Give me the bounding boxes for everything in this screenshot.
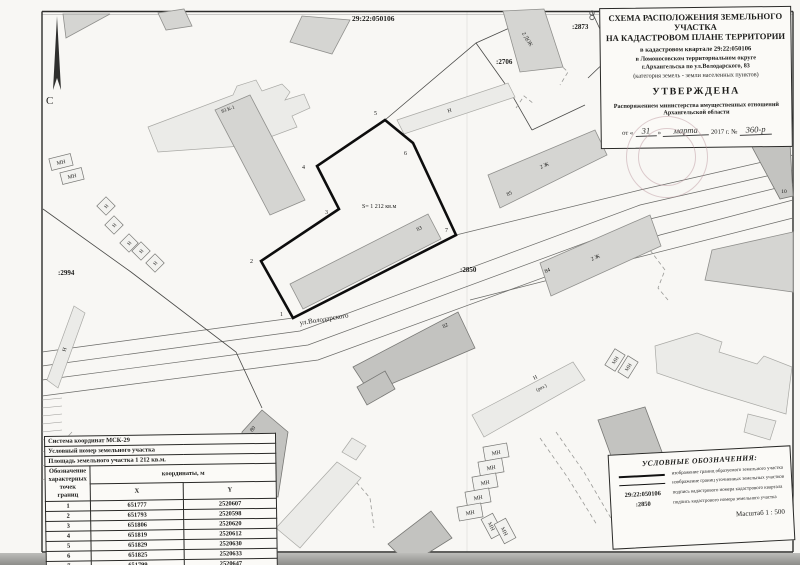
point-x: 651799 — [91, 560, 184, 565]
col-y-header: Y — [183, 481, 276, 500]
building-small-se — [744, 414, 776, 440]
point-5-label: 5 — [374, 111, 377, 117]
point-6-label: 6 — [404, 151, 407, 157]
street-label: ул.Володарского — [299, 311, 349, 327]
point-7-label: 7 — [445, 228, 448, 234]
point-n: 4 — [46, 531, 91, 542]
title-block: СХЕМА РАСПОЛОЖЕНИЯ ЗЕМЕЛЬНОГО УЧАСТКА НА… — [599, 6, 793, 149]
date-month-handwritten: марта — [663, 124, 709, 137]
point-3-label: 3 — [325, 210, 328, 216]
paper-fold — [466, 12, 468, 552]
thin-line-symbol — [616, 483, 668, 487]
date-close-quote: » — [658, 130, 661, 137]
north-arrow: С — [46, 16, 61, 107]
col-x-header: X — [90, 482, 183, 501]
area-label: S= 1 212 кв.м — [362, 204, 396, 210]
approval-date-line: от « 31 » марта 2017 г. № 360-р — [606, 124, 788, 137]
order-number-handwritten: 360-р — [739, 124, 771, 136]
legend-item-text: подпись кадастрового номера земельного у… — [673, 495, 777, 506]
building-n-raz — [472, 362, 585, 437]
point-n: 7 — [46, 561, 91, 565]
parcel-2706-label: :2706 — [496, 58, 513, 66]
scale-label: Масштаб 1 : 500 — [618, 508, 787, 525]
building-10-label: 10 — [781, 189, 787, 195]
quarter-number-symbol: 29:22:050106 — [617, 490, 669, 500]
col-points-header: Обозначение характерных точек границ — [45, 466, 91, 502]
north-label: С — [46, 95, 53, 107]
thick-line-symbol — [616, 473, 668, 478]
approved-stamp-text: УТВЕРЖДЕНА — [605, 84, 787, 97]
parcel-right-edge — [705, 232, 793, 292]
doc-title-line2: НА КАДАСТРОВОМ ПЛАНЕ ТЕРРИТОРИИ — [604, 31, 786, 43]
date-day-handwritten: 31 — [635, 125, 656, 137]
point-n: 2 — [46, 511, 91, 522]
point-n: 6 — [46, 551, 91, 562]
cadastral-plan-sheet: МН МН Н Н Н Н Н МН МН МН МН МН МН — [0, 0, 800, 565]
point-1-label: 1 — [280, 312, 283, 318]
point-n: 3 — [46, 521, 91, 532]
building-complex-se — [655, 333, 792, 414]
point-y: 2520647 — [184, 558, 277, 565]
point-n: 5 — [46, 541, 91, 552]
parcel-2850-label: :2850 — [460, 266, 477, 274]
building-84 — [540, 215, 661, 296]
doc-title-line1: СХЕМА РАСПОЛОЖЕНИЯ ЗЕМЕЛЬНОГО УЧАСТКА — [604, 11, 786, 34]
date-prefix: от « — [622, 130, 633, 137]
corner-triangle — [63, 14, 110, 38]
building-n-band — [397, 83, 515, 134]
parcel-number-symbol: :2850 — [617, 500, 669, 510]
coordinates-table: Система координат МСК-29 Условный номер … — [44, 433, 278, 565]
point-2-label: 2 — [250, 259, 253, 265]
point-4-label: 4 — [302, 165, 305, 171]
doc-quarter: в кадастровом квартале 29:22:050106 — [605, 45, 787, 54]
parcel-2994-label: :2994 — [58, 269, 75, 277]
building-small-c — [342, 438, 366, 460]
building-long-sw — [276, 462, 361, 548]
building-85 — [488, 130, 607, 208]
building-10 — [752, 143, 793, 199]
quarter-number-label: 29:22:050106 — [352, 14, 395, 23]
parcel-2873-label: :2873 — [572, 23, 589, 31]
point-n: 1 — [45, 501, 90, 512]
date-year: 2017 г. № — [711, 129, 737, 136]
building-top-a — [290, 16, 350, 54]
legend-box: УСЛОВНЫЕ ОБОЗНАЧЕНИЯ: изображение границ… — [608, 445, 796, 549]
doc-category: (категория земель - земли населенных пун… — [605, 70, 787, 80]
